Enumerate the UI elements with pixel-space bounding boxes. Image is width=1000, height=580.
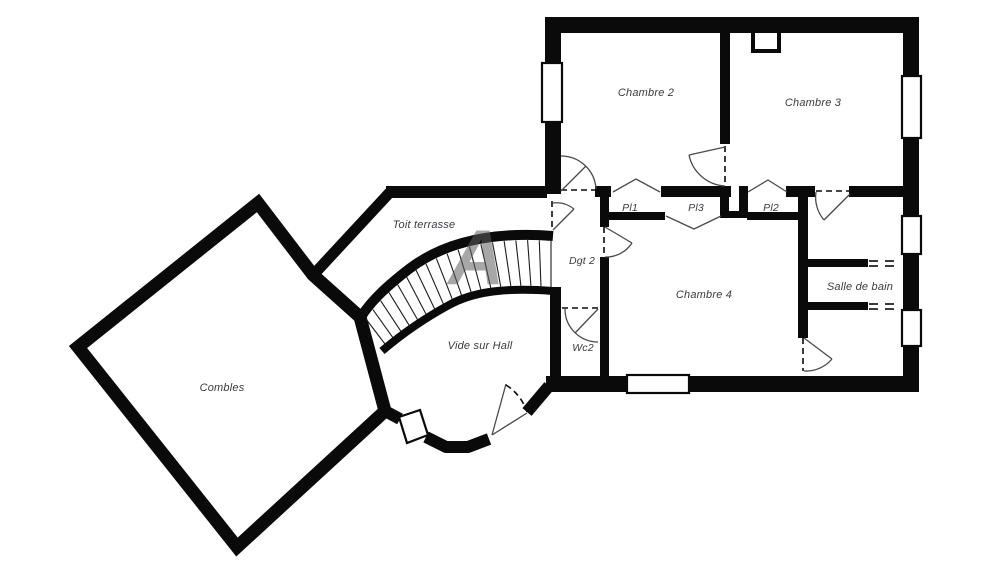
terrace-diagonal-wall [316,190,392,272]
door-chambre3-bathroom [816,191,850,220]
duct-wall-bottom [720,211,748,218]
door-wc2 [562,308,599,342]
block-interior-walls [550,30,903,377]
stair-tread [516,240,521,285]
room-label-toit-terrasse: Toit terrasse [393,219,456,231]
block-bottom-wall [546,376,919,392]
stair-tread [373,310,396,342]
room-label-salle-de-bain: Salle de bain [827,281,893,293]
folding-door-pl1 [613,179,660,192]
stair-tread [389,292,411,328]
door-chambre4-bathroom [803,338,832,371]
stair-tread [398,285,420,323]
window-right-lower [902,310,921,346]
dgt2-right-wall-upper [600,186,609,227]
bathroom-top-wall [806,259,868,267]
floor-plan: A Chambre 2 Chambre 3 Chambre 4 Salle de… [0,0,1000,580]
stair-treads [366,240,551,348]
stair-tread [504,241,511,286]
corridor-wall-right-2 [849,186,903,197]
door-chambre2-chambre3 [689,146,725,186]
room-label-chambre3: Chambre 3 [785,97,841,109]
window-chambre2-left [542,63,562,122]
window-right-upper [902,216,921,254]
stair-tread [492,242,500,286]
folding-door-pl2 [748,180,787,192]
room-label-pl2: Pl2 [763,202,779,214]
tower-window [399,410,428,443]
room-label-dgt2: Dgt 2 [569,255,595,267]
stair-tread [416,270,436,311]
tower-wall-bottom [426,437,489,447]
room-label-pl3: Pl3 [688,202,704,214]
stair-tread [381,301,404,335]
room-label-pl1: Pl1 [622,202,638,214]
window-chambre3-right [902,76,921,138]
tower-walls [385,384,549,447]
hall-door [492,384,527,435]
chimney-duct [753,31,779,51]
tower-wall-right [527,386,549,412]
folding-door-pl3 [666,216,721,229]
stair-tread [469,247,480,290]
tower-wall-left [385,411,400,419]
block-top-wall [545,17,919,33]
room-label-combles: Combles [200,382,245,394]
stair-tread [458,250,471,293]
dgt2-right-wall-lower [600,257,609,377]
door-landing-dgt2 [552,201,574,232]
wall-chambre2-chambre3 [720,30,730,144]
bathroom-bottom-wall [806,302,868,310]
stair-tread [481,244,491,288]
stair-tread [539,240,541,286]
stair-tread [528,240,531,286]
staircase [361,235,553,351]
door-chambre2 [561,156,596,191]
stair-tread [407,277,428,317]
room-label-chambre4: Chambre 4 [676,289,732,301]
window-bottom [627,375,689,393]
terrace-top-wall [386,186,547,198]
block-outer-walls [542,17,921,393]
dgt2-left-wall [550,287,561,377]
room-label-wc2: Wc2 [572,342,594,354]
door-dgt2-chambre4 [604,227,632,257]
room-label-chambre2: Chambre 2 [618,87,674,99]
stair-tread [447,254,462,296]
room-label-vide-sur-hall: Vide sur Hall [448,340,513,352]
